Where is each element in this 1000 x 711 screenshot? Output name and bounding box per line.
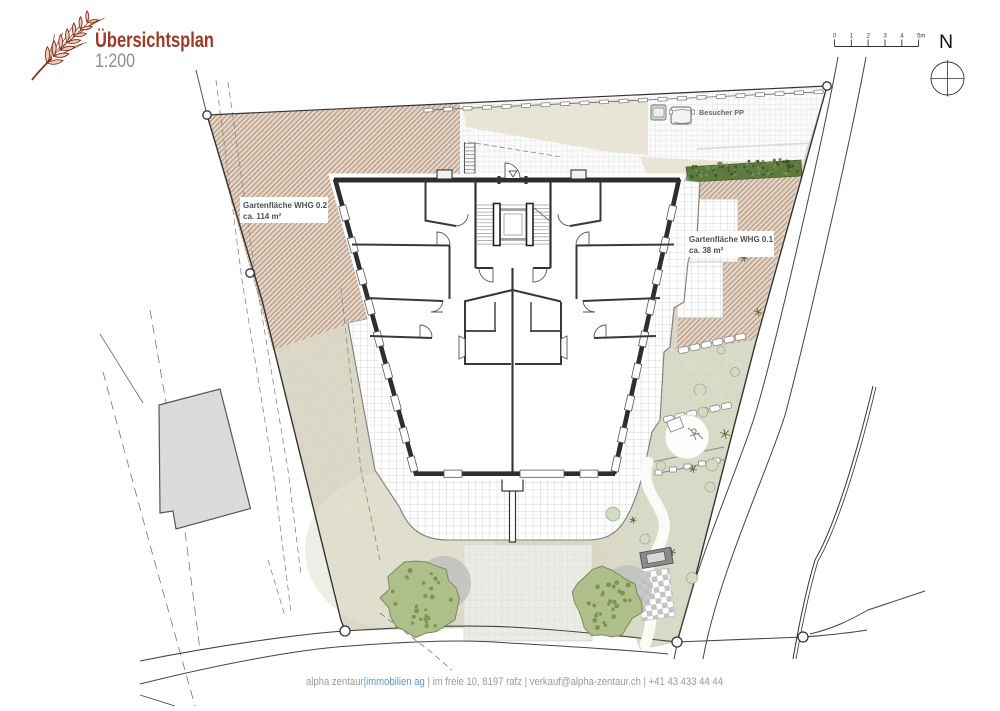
svg-text:Gartenfläche WHG 0.2: Gartenfläche WHG 0.2 xyxy=(243,201,328,210)
svg-text:alpha zentaur|immobilien ag |: alpha zentaur|immobilien ag | im freie 1… xyxy=(306,676,723,688)
svg-text:1:200: 1:200 xyxy=(95,51,135,72)
svg-text:ca. 114 m²: ca. 114 m² xyxy=(243,212,282,221)
svg-text:Besucher PP: Besucher PP xyxy=(699,108,744,117)
svg-text:Gartenfläche WHG 0.1: Gartenfläche WHG 0.1 xyxy=(689,235,774,244)
svg-text:Übersichtsplan: Übersichtsplan xyxy=(95,29,214,52)
svg-text:5m: 5m xyxy=(917,34,925,40)
svg-text:N: N xyxy=(939,31,953,53)
svg-text:ca. 38 m²: ca. 38 m² xyxy=(689,246,724,255)
